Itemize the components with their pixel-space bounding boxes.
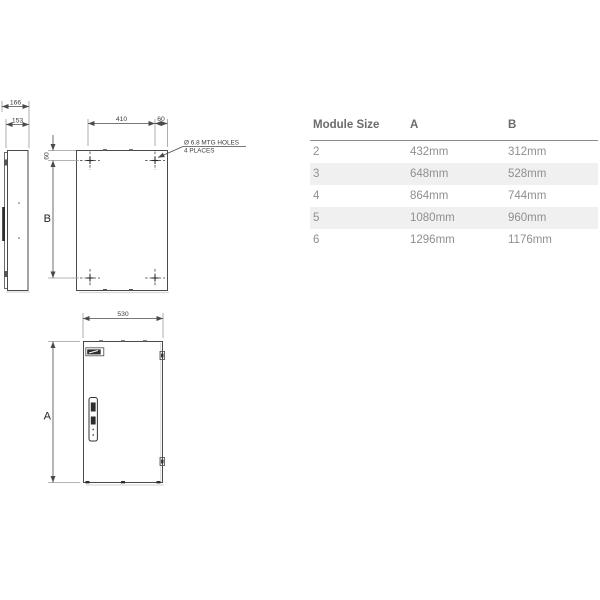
door-handle (89, 398, 97, 442)
handle-lock-mid (91, 417, 96, 425)
side-hinge-bottom (4, 271, 8, 277)
table-cell: 6 (310, 229, 407, 251)
dim-label-height-B: B (44, 213, 51, 225)
table-cell: 864mm (407, 185, 505, 207)
table-header-module-size: Module Size (310, 111, 407, 140)
table-row: 4864mm744mm (310, 185, 598, 207)
dim-label-hole-offset-top: 60 (44, 152, 51, 160)
table-cell: 744mm (505, 185, 598, 207)
dim-label-hole-offset-right: 60 (157, 116, 165, 123)
brand-label (86, 348, 104, 356)
dim-label-width: 530 (117, 311, 129, 318)
dim-label-overall-depth: 166 (10, 100, 22, 107)
rear-view: 410 60 60 B Ø 6.8 MTG HOLES 4 PLACES (44, 116, 247, 293)
side-handle (2, 207, 5, 241)
table-cell: 1296mm (407, 229, 505, 251)
callout-line1: Ø 6.8 MTG HOLES (184, 140, 239, 147)
callout-line2: 4 PLACES (184, 148, 215, 155)
dim-label-height-A: A (44, 411, 52, 423)
front-foot-right (157, 481, 161, 483)
technical-drawing: 166 153 (0, 0, 600, 600)
front-foot-left (86, 481, 90, 483)
side-body (8, 151, 29, 291)
mounting-hole-top-left (80, 152, 100, 171)
mounting-hole-bottom-left (80, 269, 100, 287)
table-row: 51080mm960mm (310, 207, 598, 229)
side-hinge-top (4, 160, 8, 166)
table-cell: 648mm (407, 163, 505, 185)
side-stud-bottom (18, 237, 20, 239)
table-row: 2432mm312mm (310, 141, 598, 163)
module-size-table: Module Size A B 2432mm312mm3648mm528mm48… (310, 111, 598, 251)
table-cell: 3 (310, 163, 407, 185)
handle-lock-top (91, 403, 96, 412)
table-cell: 1176mm (505, 229, 598, 251)
table-header-a: A (407, 111, 505, 140)
table-header-row: Module Size A B (310, 111, 598, 141)
table-cell: 1080mm (407, 207, 505, 229)
table-body: 2432mm312mm3648mm528mm4864mm744mm51080mm… (310, 141, 598, 251)
side-stud-top (18, 202, 20, 204)
table-row: 61296mm1176mm (310, 229, 598, 251)
table-cell: 312mm (505, 141, 598, 163)
table-row: 3648mm528mm (310, 163, 598, 185)
table-cell: 960mm (505, 207, 598, 229)
table-header-b: B (505, 111, 598, 140)
table-cell: 528mm (505, 163, 598, 185)
front-view: 530 (44, 311, 165, 485)
table-cell: 4 (310, 185, 407, 207)
table-cell: 5 (310, 207, 407, 229)
side-view: 166 153 (2, 100, 30, 293)
table-cell: 432mm (407, 141, 505, 163)
mounting-hole-top-right (145, 152, 165, 171)
mounting-hole-bottom-right (145, 269, 165, 287)
mtg-holes-callout: Ø 6.8 MTG HOLES 4 PLACES (158, 140, 246, 158)
dim-label-hole-spacing: 410 (116, 116, 128, 123)
front-foot-center (121, 481, 125, 483)
dim-label-body-depth: 153 (12, 118, 24, 125)
table-cell: 2 (310, 141, 407, 163)
